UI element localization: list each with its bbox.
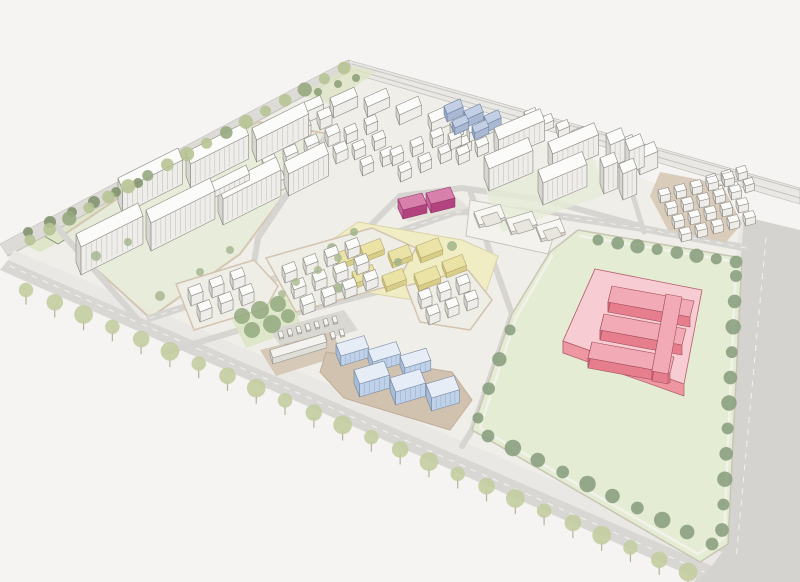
south-tree-row-5 bbox=[161, 342, 180, 361]
field-tree-row-west-2 bbox=[492, 352, 506, 366]
grove-trees-5 bbox=[281, 309, 295, 323]
campus-trees-2 bbox=[447, 241, 457, 251]
south-tree-row-16 bbox=[478, 478, 495, 495]
main-road-verge-trees-2 bbox=[334, 254, 342, 262]
south-tree-row-9 bbox=[278, 393, 292, 407]
south-tree-row-3 bbox=[105, 320, 119, 334]
field-tree-row-north-5 bbox=[689, 249, 703, 263]
south-tree-row-21 bbox=[623, 540, 637, 554]
grove-trees-0 bbox=[234, 308, 250, 324]
field-tree-row-east-10 bbox=[715, 523, 729, 537]
main-road-verge-trees-0 bbox=[292, 278, 300, 286]
south-tree-row-19 bbox=[565, 515, 582, 532]
grove-trees-2 bbox=[270, 296, 286, 312]
field-tree-row-south-1 bbox=[680, 525, 695, 540]
north-tree-row-8 bbox=[180, 147, 194, 161]
nw-lawn-trees-1 bbox=[124, 238, 132, 246]
field-tree-row-north-2 bbox=[630, 239, 644, 253]
top-corner-trees-1 bbox=[334, 80, 342, 88]
north-tree-row-10 bbox=[220, 126, 233, 139]
south-tree-row-8 bbox=[247, 379, 266, 398]
masterplan-aerial-view bbox=[0, 0, 800, 582]
grove-trees-4 bbox=[263, 315, 281, 333]
field-tree-row-south-8 bbox=[505, 440, 522, 457]
main-road-verge-trees-1 bbox=[314, 266, 322, 274]
north-tree-row-12 bbox=[260, 105, 271, 116]
south-tree-row-20 bbox=[592, 526, 611, 545]
field-tree-row-east-1 bbox=[728, 295, 742, 309]
north-tree-row-3 bbox=[83, 202, 94, 213]
north-tree-row-4 bbox=[102, 191, 115, 204]
grove-trees-1 bbox=[251, 301, 269, 319]
field-tree-row-south-9 bbox=[482, 430, 495, 443]
field-tree-row-west-1 bbox=[482, 382, 495, 395]
north-tree-row-13 bbox=[279, 94, 292, 107]
field-tree-row-north-6 bbox=[711, 253, 722, 264]
field-tree-row-west-0 bbox=[472, 412, 483, 423]
north-tree-row-7 bbox=[161, 158, 174, 171]
south-tree-row-6 bbox=[191, 356, 205, 370]
field-tree-row-south-0 bbox=[706, 538, 719, 551]
field-tree-row-east-4 bbox=[724, 371, 738, 385]
field-tree-row-south-5 bbox=[579, 476, 596, 493]
field-tree-row-south-2 bbox=[654, 512, 671, 529]
field-tree-row-east-8 bbox=[717, 472, 732, 487]
field-tree-row-east-7 bbox=[719, 447, 733, 461]
north-tree-row-0 bbox=[24, 234, 35, 245]
field-tree-row-north-3 bbox=[652, 244, 663, 255]
field-tree-row-east-0 bbox=[730, 270, 742, 282]
south-tree-row-2 bbox=[74, 305, 93, 324]
south-tree-row-18 bbox=[537, 503, 551, 517]
field-tree-row-south-3 bbox=[631, 502, 644, 515]
campus-trees-5 bbox=[394, 258, 402, 266]
north-tree-row-11 bbox=[239, 115, 253, 129]
north-tree-row-6 bbox=[142, 170, 153, 181]
south-tree-row-12 bbox=[364, 430, 378, 444]
south-tree-row-4 bbox=[133, 331, 150, 348]
field-tree-row-east-6 bbox=[722, 422, 734, 434]
field-tree-row-south-7 bbox=[530, 453, 545, 468]
field-tree-row-south-6 bbox=[556, 466, 569, 479]
south-tree-row-22 bbox=[651, 551, 668, 568]
north-tree-row-14 bbox=[298, 82, 312, 96]
top-corner-trees-0 bbox=[314, 88, 322, 96]
north-tree-row-15 bbox=[319, 73, 330, 84]
south-tree-row-14 bbox=[420, 452, 439, 471]
north-tree-row-2 bbox=[62, 211, 76, 225]
field-tree-row-north-7 bbox=[730, 256, 743, 269]
north-tree-row-16 bbox=[338, 62, 351, 75]
field-tree-row-east-9 bbox=[717, 499, 729, 511]
south-tree-row-15 bbox=[451, 467, 465, 481]
south-tree-row-0 bbox=[19, 283, 33, 297]
grove-trees-3 bbox=[244, 322, 260, 338]
nw-lawn-trees-4 bbox=[226, 246, 234, 254]
campus-trees-1 bbox=[350, 228, 358, 236]
south-tree-row-17 bbox=[506, 489, 525, 508]
field-tree-row-east-3 bbox=[726, 346, 738, 358]
south-tree-row-1 bbox=[46, 294, 63, 311]
field-tree-row-east-5 bbox=[721, 395, 736, 410]
north-tree-row-1 bbox=[43, 223, 56, 236]
field-tree-row-north-1 bbox=[611, 237, 624, 250]
nw-lawn-trees-3 bbox=[196, 268, 204, 276]
north-tree-row-9 bbox=[201, 138, 212, 149]
south-tree-row-10 bbox=[306, 404, 323, 421]
top-corner-trees-2 bbox=[352, 74, 360, 82]
south-tree-row-13 bbox=[392, 441, 409, 458]
field-tree-row-south-4 bbox=[605, 489, 620, 504]
field-tree-row-north-0 bbox=[592, 234, 603, 245]
masterplan-svg bbox=[0, 0, 800, 582]
south-tree-row-11 bbox=[333, 416, 352, 435]
field-tree-row-west-3 bbox=[504, 324, 515, 335]
south-tree-row-23 bbox=[679, 563, 698, 582]
nw-lawn-trees-2 bbox=[155, 291, 165, 301]
field-tree-row-east-2 bbox=[726, 319, 741, 334]
field-tree-row-north-4 bbox=[671, 246, 684, 259]
nw-lawn-trees-0 bbox=[91, 251, 101, 261]
south-tree-row-7 bbox=[219, 368, 236, 385]
north-tree-row-5 bbox=[121, 179, 135, 193]
